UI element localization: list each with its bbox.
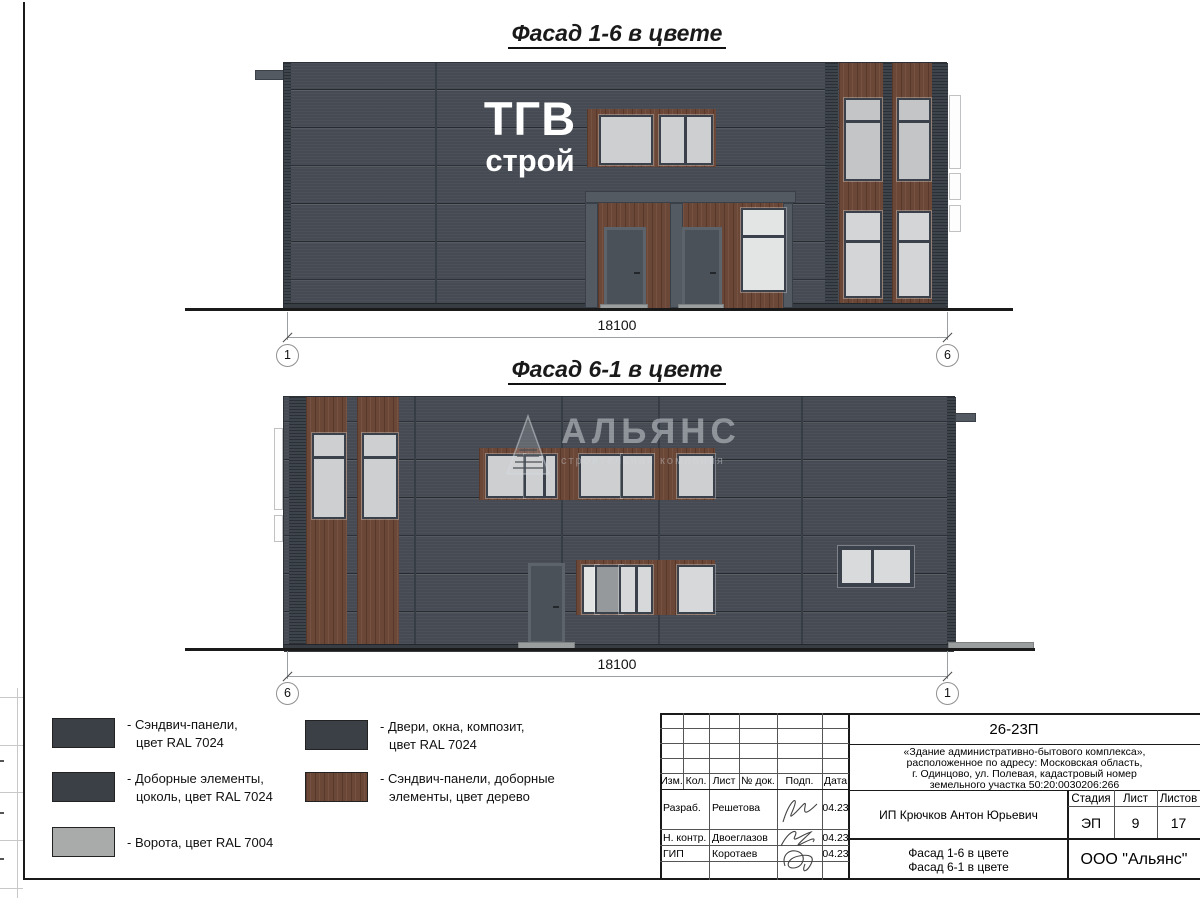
legend-label: - Двери, окна, композит, цвет RAL 7024 xyxy=(380,718,524,754)
row-name: Решетова xyxy=(712,802,760,814)
window-mullion xyxy=(364,456,396,459)
col-data: Дата xyxy=(822,775,849,787)
window-mullion xyxy=(846,120,880,123)
dimension-line xyxy=(287,337,947,338)
entrance-pillar xyxy=(585,203,598,308)
sheet-value: 9 xyxy=(1114,815,1157,831)
panel-joint-band xyxy=(825,63,838,310)
window xyxy=(844,211,882,298)
corner-band xyxy=(284,63,291,310)
edge-stamp-line xyxy=(17,688,18,898)
ground-line xyxy=(185,648,1035,651)
panel-joint xyxy=(414,397,416,651)
row-date: 04.23 xyxy=(822,802,849,814)
edge-stamp-mark xyxy=(0,858,4,860)
door-handle xyxy=(634,272,640,274)
legend-swatch-doors xyxy=(305,720,368,750)
window-mullion xyxy=(846,240,880,243)
facade1-title: Фасад 1-6 в цвете xyxy=(377,20,857,47)
window xyxy=(677,565,715,614)
window xyxy=(897,98,931,181)
col-ndok: № док. xyxy=(739,775,777,787)
company-name: ООО "Альянс" xyxy=(1068,851,1200,869)
row-role: Разраб. xyxy=(663,802,701,814)
corner-band xyxy=(932,63,948,310)
window-mullion xyxy=(314,456,344,459)
edge-stamp-line xyxy=(0,792,23,793)
downpipe xyxy=(949,205,961,232)
entrance-canopy xyxy=(585,191,796,203)
edge-stamp-line xyxy=(0,888,23,889)
row-name: Двоеглазов xyxy=(712,832,768,844)
canopy-right xyxy=(955,413,976,422)
downpipe xyxy=(274,428,283,510)
col-izm: Изм. xyxy=(660,775,683,787)
sheets-label: Листов xyxy=(1157,793,1200,805)
legend-swatch-gate xyxy=(52,827,115,857)
window xyxy=(838,546,914,587)
watermark-subtitle: строительная компания xyxy=(561,455,741,467)
legend-label: - Сэндвич-панели, доборные элементы, цве… xyxy=(380,770,555,806)
back-door xyxy=(528,563,565,644)
corner-band xyxy=(947,397,956,651)
row-date: 04.23 xyxy=(822,832,849,844)
legend-label: - Доборные элементы, цоколь, цвет RAL 70… xyxy=(127,770,273,806)
edge-stamp-mark xyxy=(0,812,4,814)
window xyxy=(599,115,653,165)
axis-marker-1: 1 xyxy=(936,682,959,705)
downpipe xyxy=(949,95,961,169)
canopy-left xyxy=(255,70,285,80)
watermark: АЛЬЯНС строительная компания xyxy=(505,414,741,476)
sheets-value: 17 xyxy=(1157,815,1200,831)
signage-line2: строй xyxy=(454,145,606,176)
downpipe xyxy=(949,173,961,200)
window xyxy=(897,211,931,298)
window-mullion xyxy=(899,240,929,243)
corner-band xyxy=(289,397,306,651)
panel-joint xyxy=(801,397,803,651)
axis-marker-1: 1 xyxy=(276,344,299,367)
project-address-line: земельного участка 50:20:0030206:266 xyxy=(849,779,1200,791)
window xyxy=(659,115,713,165)
window xyxy=(741,208,786,292)
sheet-label: Лист xyxy=(1114,793,1157,805)
legend-label: - Сэндвич-панели, цвет RAL 7024 xyxy=(127,716,238,752)
window-mullion xyxy=(743,235,784,238)
dimension-line xyxy=(287,676,947,677)
stage-value: ЭП xyxy=(1068,815,1114,831)
col-podp: Подп. xyxy=(777,775,822,787)
watermark-name: АЛЬЯНС xyxy=(561,414,741,449)
legend-swatch-dobor xyxy=(52,772,115,802)
row-name: Коротаев xyxy=(712,848,757,860)
door-handle xyxy=(710,272,716,274)
window xyxy=(619,565,653,614)
window-mullion xyxy=(635,567,638,612)
edge-stamp-line xyxy=(0,840,23,841)
downpipe xyxy=(274,515,283,542)
edge-stamp-line xyxy=(0,697,23,698)
drawing-sheet: Фасад 1-6 в цвете ТГВ строй xyxy=(0,0,1200,900)
dimension-value: 18100 xyxy=(287,656,947,672)
row-role: Н. контр. xyxy=(663,832,706,844)
legend-swatch-sandwich xyxy=(52,718,115,748)
sheet-subject-line2: Фасад 6-1 в цвете xyxy=(849,860,1068,874)
door-handle xyxy=(553,606,559,608)
signature-icon xyxy=(777,826,821,874)
edge-stamp-line xyxy=(0,745,23,746)
legend-swatch-wood xyxy=(305,772,368,802)
panel-joint xyxy=(435,63,437,310)
dimension-value: 18100 xyxy=(287,317,947,333)
legend-label: - Ворота, цвет RAL 7004 xyxy=(127,834,273,852)
client-name: ИП Крючков Антон Юрьевич xyxy=(849,808,1068,822)
window-mullion xyxy=(871,550,874,583)
axis-marker-6: 6 xyxy=(936,344,959,367)
signage-line1: ТГВ xyxy=(454,95,606,142)
row-role: ГИП xyxy=(663,848,684,860)
entrance-door xyxy=(604,227,646,308)
sheet-subject-line1: Фасад 1-6 в цвете xyxy=(849,846,1068,860)
stage-label: Стадия xyxy=(1068,793,1114,805)
doc-number: 26-23П xyxy=(849,721,1179,738)
axis-marker-6: 6 xyxy=(276,682,299,705)
ground-line xyxy=(185,308,1013,311)
building-signage: ТГВ строй xyxy=(454,95,606,176)
watermark-triangle-icon xyxy=(505,414,551,476)
panel-joint-band xyxy=(883,63,892,303)
col-kol: Кол. xyxy=(683,775,709,787)
frame-left xyxy=(23,2,25,880)
entrance-door xyxy=(682,227,722,308)
window xyxy=(362,433,398,519)
row-date: 04.23 xyxy=(822,848,849,860)
window-mullion xyxy=(684,117,687,163)
window-mullion xyxy=(899,120,929,123)
signature-icon xyxy=(779,792,821,828)
window xyxy=(844,98,882,181)
edge-stamp-mark xyxy=(0,760,4,762)
col-list: Лист xyxy=(709,775,739,787)
window xyxy=(312,433,346,519)
facade2-title: Фасад 6-1 в цвете xyxy=(377,356,857,383)
